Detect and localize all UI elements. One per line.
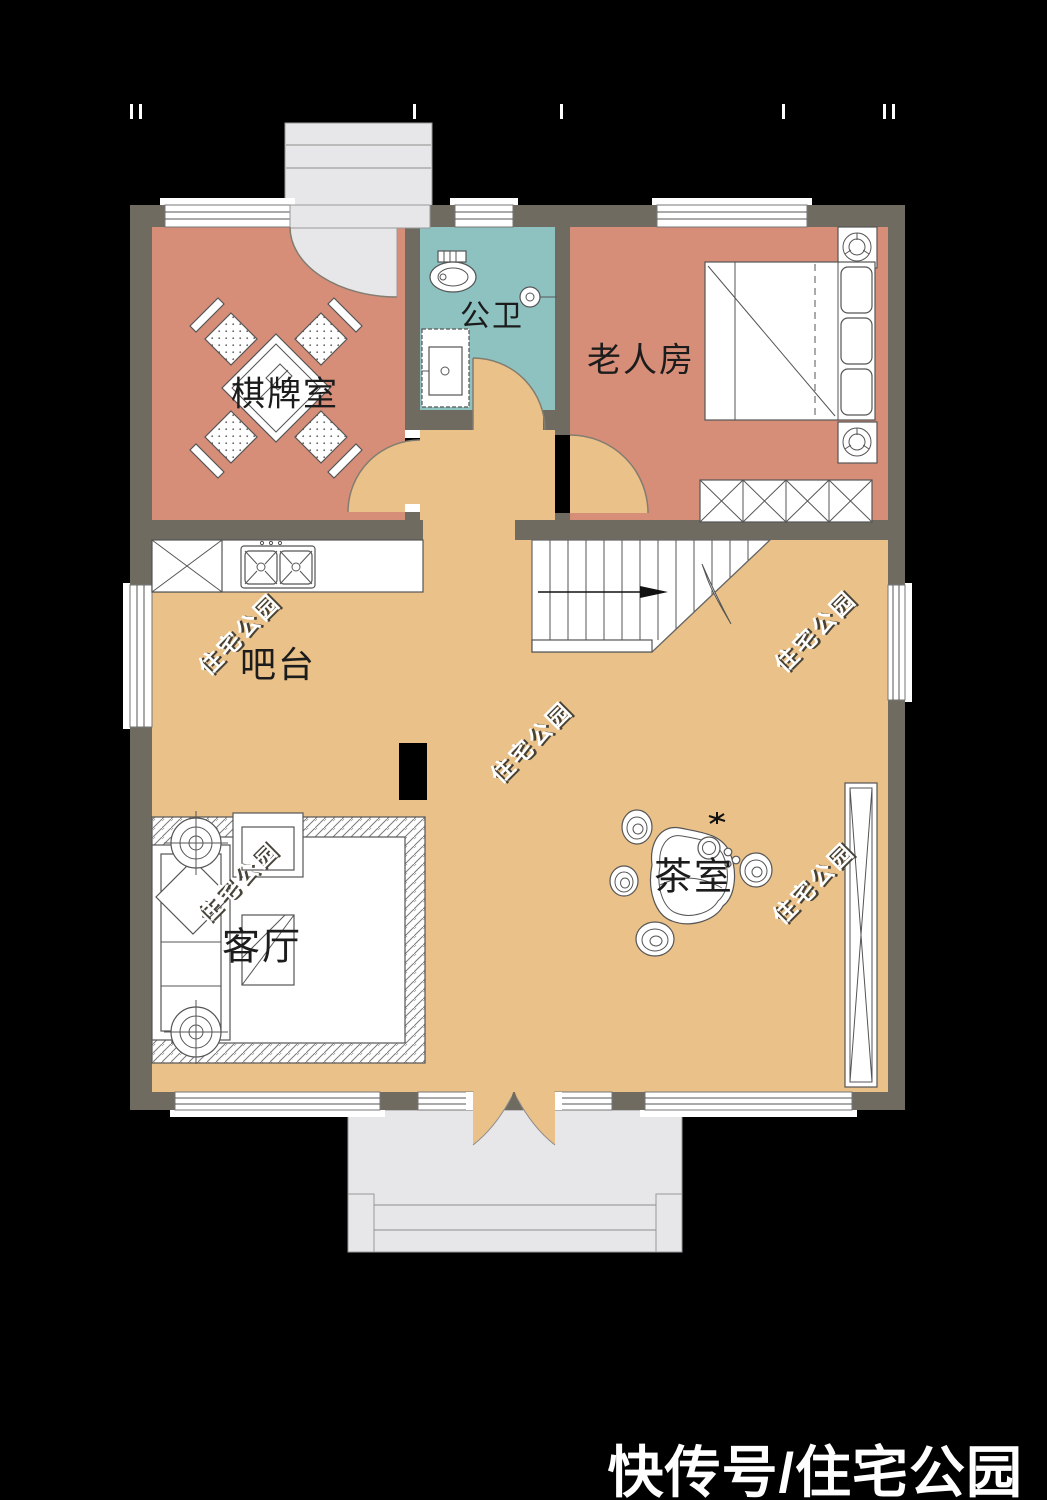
wardrobe-icon [700, 480, 872, 522]
page-caption: 快传号/住宅公园 [607, 1428, 1023, 1500]
elder-room-label: 老人房 [587, 333, 695, 382]
column [399, 743, 427, 800]
top-porch [285, 123, 432, 213]
bar-label: 吧台 [240, 636, 316, 688]
dimension-ticks [130, 104, 895, 119]
tall-cabinet [845, 783, 877, 1087]
bar-counter [152, 540, 423, 592]
double-sink-icon [241, 541, 315, 588]
chess-room-label: 棋牌室 [231, 367, 339, 416]
nightstand-icon [838, 422, 877, 463]
floor-plan-page: 棋牌室 公卫 老人房 吧台 客厅 茶室 住宅公园 住宅公园 住宅公园 住宅公园 … [0, 0, 1047, 1500]
bottom-porch [348, 1110, 682, 1252]
corridor-floor [420, 430, 555, 522]
bed-icon [705, 262, 875, 420]
living-room-label: 客厅 [222, 916, 302, 971]
sink-vanity-icon [422, 329, 469, 407]
bathroom-label: 公卫 [460, 291, 524, 335]
tea-room-label: 茶室 [654, 846, 734, 901]
